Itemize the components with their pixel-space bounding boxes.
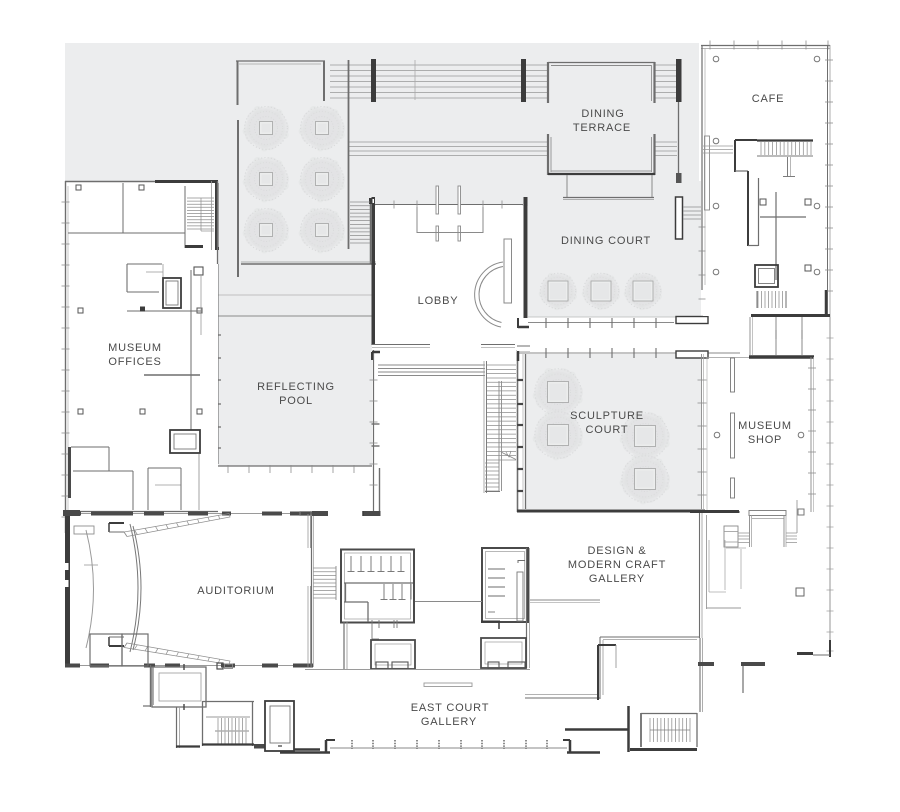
svg-text:DINING: DINING xyxy=(581,108,624,120)
svg-text:DINING COURT: DINING COURT xyxy=(561,235,651,247)
svg-text:EAST COURT: EAST COURT xyxy=(411,702,490,714)
svg-text:MUSEUM: MUSEUM xyxy=(108,342,162,354)
svg-text:OFFICES: OFFICES xyxy=(108,356,161,368)
svg-text:MUSEUM: MUSEUM xyxy=(738,420,792,432)
svg-text:REFLECTING: REFLECTING xyxy=(257,381,335,393)
svg-text:DESIGN &: DESIGN & xyxy=(588,545,647,557)
svg-text:CAFE: CAFE xyxy=(752,93,785,105)
svg-text:SHOP: SHOP xyxy=(748,434,782,446)
svg-text:GALLERY: GALLERY xyxy=(589,573,645,585)
svg-text:GALLERY: GALLERY xyxy=(421,716,477,728)
svg-text:AUDITORIUM: AUDITORIUM xyxy=(197,585,274,597)
svg-text:LOBBY: LOBBY xyxy=(418,295,459,307)
svg-text:SCULPTURE: SCULPTURE xyxy=(570,410,644,422)
svg-text:MODERN CRAFT: MODERN CRAFT xyxy=(568,559,666,571)
svg-text:TERRACE: TERRACE xyxy=(573,122,631,134)
svg-text:COURT: COURT xyxy=(586,424,629,436)
svg-text:POOL: POOL xyxy=(279,395,313,407)
